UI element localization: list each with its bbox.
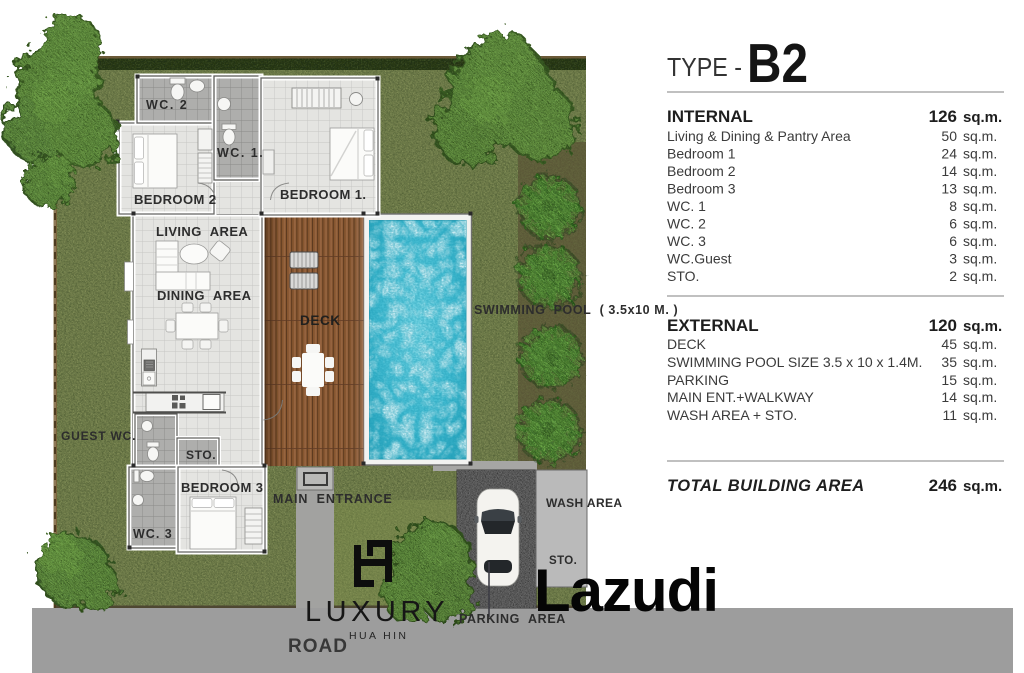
svg-text:BEDROOM 1.: BEDROOM 1. <box>280 187 366 202</box>
svg-text:Bedroom 3: Bedroom 3 <box>667 181 736 197</box>
svg-text:Lazudi: Lazudi <box>534 557 718 624</box>
svg-text:sq.m.: sq.m. <box>963 233 997 249</box>
svg-text:sq.m.: sq.m. <box>963 268 997 284</box>
svg-text:WC. 1: WC. 1 <box>667 198 706 214</box>
svg-text:DECK: DECK <box>300 313 341 328</box>
svg-text:sq.m.: sq.m. <box>963 198 997 214</box>
svg-text:B2: B2 <box>747 32 808 94</box>
svg-text:sq.m.: sq.m. <box>963 163 997 179</box>
svg-text:sq.m.: sq.m. <box>963 318 1002 335</box>
svg-text:DINING AREA: DINING AREA <box>157 288 252 303</box>
svg-text:sq.m.: sq.m. <box>963 389 997 405</box>
svg-text:SWIMMING POOL SIZE 3.5 x 10: SWIMMING POOL SIZE 3.5 x 10 x 1.4M. <box>667 354 922 370</box>
svg-text:sq.m.: sq.m. <box>963 478 1002 495</box>
svg-text:Living & Dining & Pantry Area: Living & Dining & Pantry Area <box>667 128 851 144</box>
svg-text:WASH AREA + STO.: WASH AREA + STO. <box>667 407 797 423</box>
svg-text:14: 14 <box>941 389 957 405</box>
svg-text:TYPE -: TYPE - <box>667 52 742 82</box>
svg-text:LUXURY: LUXURY <box>305 596 449 628</box>
svg-text:sq.m.: sq.m. <box>963 146 997 162</box>
svg-text:STO.: STO. <box>186 448 216 462</box>
svg-text:sq.m.: sq.m. <box>963 216 997 232</box>
svg-text:3: 3 <box>949 251 957 267</box>
svg-text:DECK: DECK <box>667 336 707 352</box>
svg-text:WASH AREA: WASH AREA <box>546 496 623 510</box>
svg-text:sq.m.: sq.m. <box>963 251 997 267</box>
svg-text:LIVING AREA: LIVING AREA <box>156 224 248 239</box>
svg-text:MAIN ENT.+WALKWAY: MAIN ENT.+WALKWAY <box>667 389 815 405</box>
svg-text:6: 6 <box>949 233 957 249</box>
svg-text:WC.Guest: WC.Guest <box>667 251 732 267</box>
svg-text:SWIMMING POOL ( 3.5x10 M. ): SWIMMING POOL ( 3.5x10 M. ) <box>474 303 678 317</box>
svg-text:Bedroom 1: Bedroom 1 <box>667 146 736 162</box>
svg-text:6: 6 <box>949 216 957 232</box>
svg-text:WC. 3: WC. 3 <box>667 233 706 249</box>
svg-text:15: 15 <box>941 372 957 388</box>
svg-text:WC. 1.: WC. 1. <box>217 146 264 160</box>
svg-text:PARKING: PARKING <box>667 372 729 388</box>
svg-text:ROAD: ROAD <box>288 636 348 657</box>
svg-text:Bedroom 2: Bedroom 2 <box>667 163 736 179</box>
svg-text:sq.m.: sq.m. <box>963 354 997 370</box>
svg-text:TOTAL BUILDING AREA: TOTAL BUILDING AREA <box>667 477 865 495</box>
svg-text:sq.m.: sq.m. <box>963 181 997 197</box>
svg-text:11: 11 <box>942 407 957 423</box>
svg-text:INTERNAL: INTERNAL <box>667 107 753 126</box>
svg-text:14: 14 <box>941 163 957 179</box>
svg-text:sq.m.: sq.m. <box>963 372 997 388</box>
svg-text:WC. 3: WC. 3 <box>133 527 173 541</box>
svg-text:2: 2 <box>949 268 957 284</box>
svg-text:sq.m.: sq.m. <box>963 128 997 144</box>
svg-text:24: 24 <box>941 146 957 162</box>
svg-text:WC. 2: WC. 2 <box>146 98 188 112</box>
svg-text:MAIN ENTRANCE: MAIN ENTRANCE <box>273 492 393 506</box>
svg-text:STO.: STO. <box>667 268 699 284</box>
svg-text:45: 45 <box>941 336 957 352</box>
svg-text:126: 126 <box>929 107 957 126</box>
svg-text:BEDROOM 2: BEDROOM 2 <box>134 192 216 207</box>
svg-text:sq.m.: sq.m. <box>963 336 997 352</box>
svg-text:35: 35 <box>941 354 957 370</box>
svg-text:BEDROOM 3: BEDROOM 3 <box>181 480 263 495</box>
svg-text:50: 50 <box>941 128 957 144</box>
svg-text:HUA HIN: HUA HIN <box>349 630 408 642</box>
svg-text:13: 13 <box>941 181 957 197</box>
svg-text:246: 246 <box>929 476 957 495</box>
svg-text:120: 120 <box>929 316 957 335</box>
svg-text:8: 8 <box>949 198 957 214</box>
svg-text:sq.m.: sq.m. <box>963 109 1002 126</box>
svg-text:WC. 2: WC. 2 <box>667 216 706 232</box>
svg-text:EXTERNAL: EXTERNAL <box>667 316 759 335</box>
svg-text:GUEST WC.: GUEST WC. <box>61 429 136 443</box>
svg-text:sq.m.: sq.m. <box>963 407 997 423</box>
